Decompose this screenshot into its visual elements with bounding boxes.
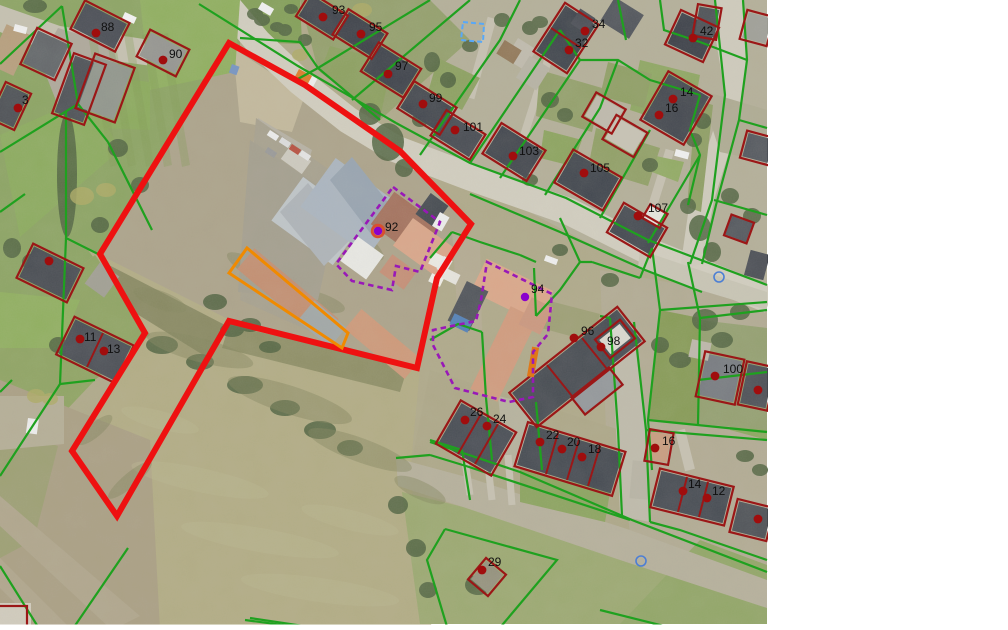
svg-text:100: 100 [723,362,743,376]
svg-text:24: 24 [493,412,507,426]
svg-text:22: 22 [546,428,560,442]
svg-text:42: 42 [700,24,714,38]
svg-text:34: 34 [592,17,606,31]
svg-text:94: 94 [531,282,545,296]
svg-text:103: 103 [519,144,539,158]
svg-text:14: 14 [688,477,702,491]
svg-text:18: 18 [588,442,602,456]
svg-text:12: 12 [712,484,726,498]
svg-text:96: 96 [581,324,595,338]
svg-text:97: 97 [395,59,409,73]
svg-text:105: 105 [590,161,610,175]
svg-text:11: 11 [84,330,97,344]
svg-text:95: 95 [369,20,383,34]
svg-text:90: 90 [169,47,183,61]
svg-text:101: 101 [463,120,483,134]
svg-text:29: 29 [488,555,502,569]
svg-text:16: 16 [665,101,679,115]
svg-text:26: 26 [470,405,484,419]
svg-text:88: 88 [101,20,115,34]
svg-text:107: 107 [648,201,668,215]
svg-text:92: 92 [385,220,399,234]
svg-text:16: 16 [662,434,676,448]
svg-text:99: 99 [429,91,443,105]
svg-text:32: 32 [575,36,589,50]
svg-text:20: 20 [567,435,581,449]
svg-text:98: 98 [607,334,621,348]
svg-text:93: 93 [332,3,346,17]
svg-text:13: 13 [107,342,121,356]
svg-text:14: 14 [680,85,694,99]
svg-text:3: 3 [22,93,29,107]
